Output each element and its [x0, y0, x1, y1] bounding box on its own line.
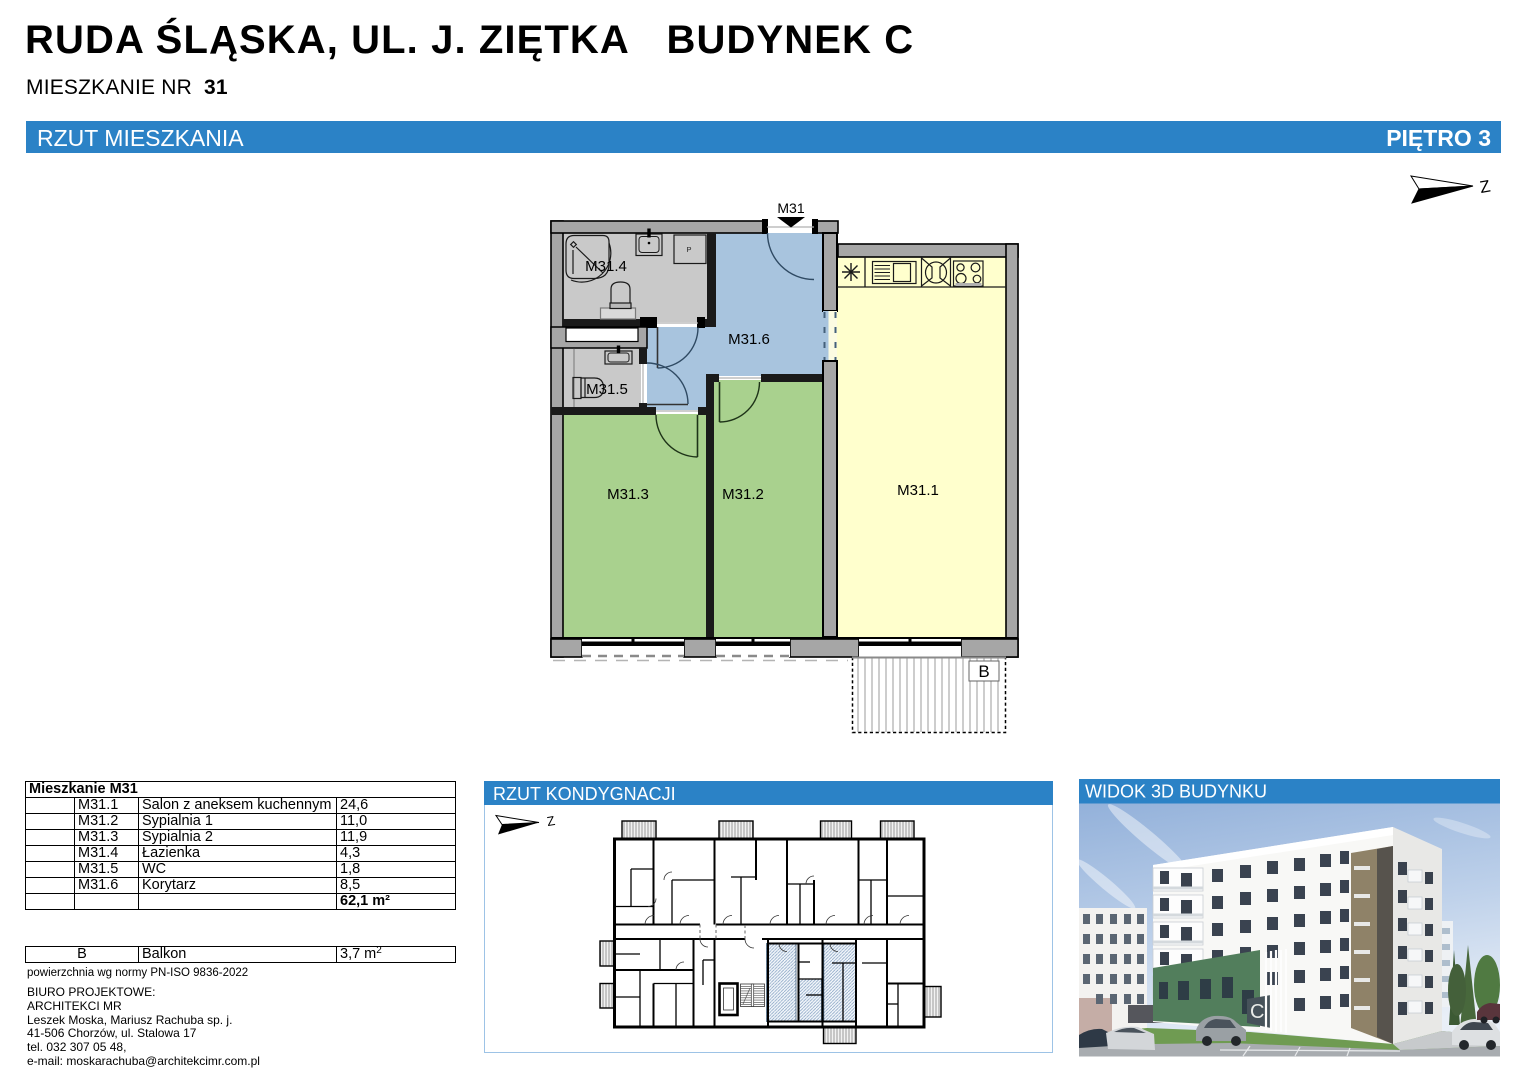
svg-text:P: P [686, 245, 691, 254]
svg-text:WIDOK 3D BUDYNKU: WIDOK 3D BUDYNKU [1085, 782, 1267, 802]
svg-text:Z: Z [546, 813, 556, 829]
svg-text:M31.4: M31.4 [585, 258, 627, 275]
svg-text:Z: Z [1478, 177, 1492, 198]
svg-text:C: C [1250, 1001, 1264, 1023]
svg-text:M31.1: M31.1 [897, 482, 939, 499]
svg-text:M31.5: M31.5 [586, 381, 628, 398]
svg-text:M31.6: M31.6 [728, 331, 770, 348]
svg-text:M31: M31 [777, 200, 804, 216]
svg-text:M31.2: M31.2 [722, 486, 764, 503]
svg-text:M31.3: M31.3 [607, 486, 649, 503]
svg-text:B: B [978, 662, 989, 681]
